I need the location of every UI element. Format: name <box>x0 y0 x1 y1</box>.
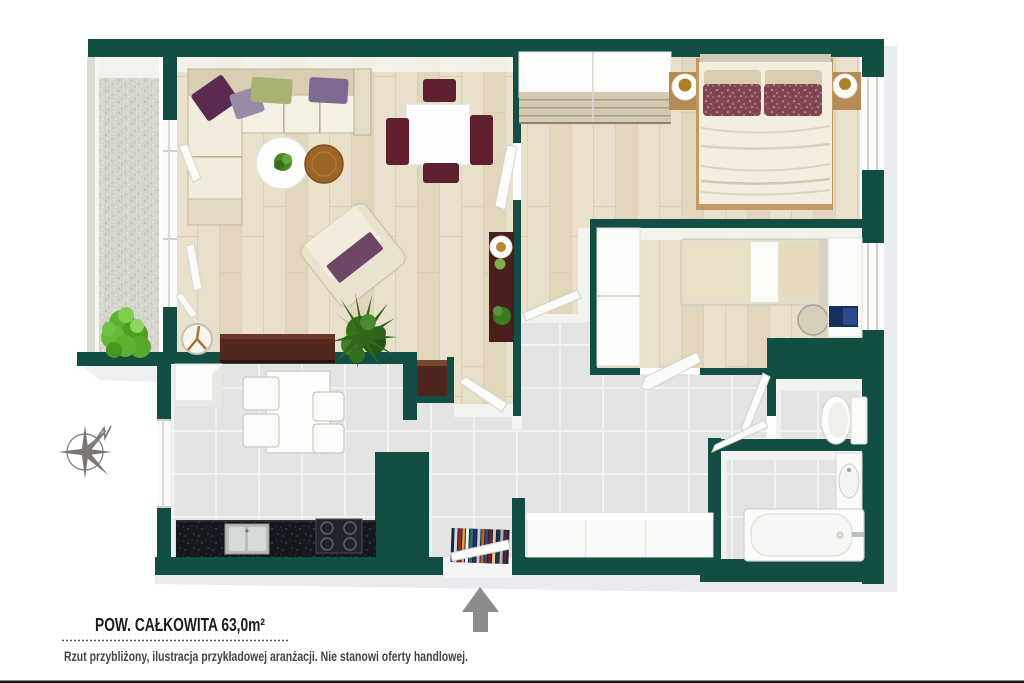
svg-text:Rzut przybliżony, ilustracja p: Rzut przybliżony, ilustracja przykładowe… <box>64 649 468 664</box>
svg-text:POW. CAŁKOWITA 63,0m²: POW. CAŁKOWITA 63,0m² <box>95 615 265 635</box>
